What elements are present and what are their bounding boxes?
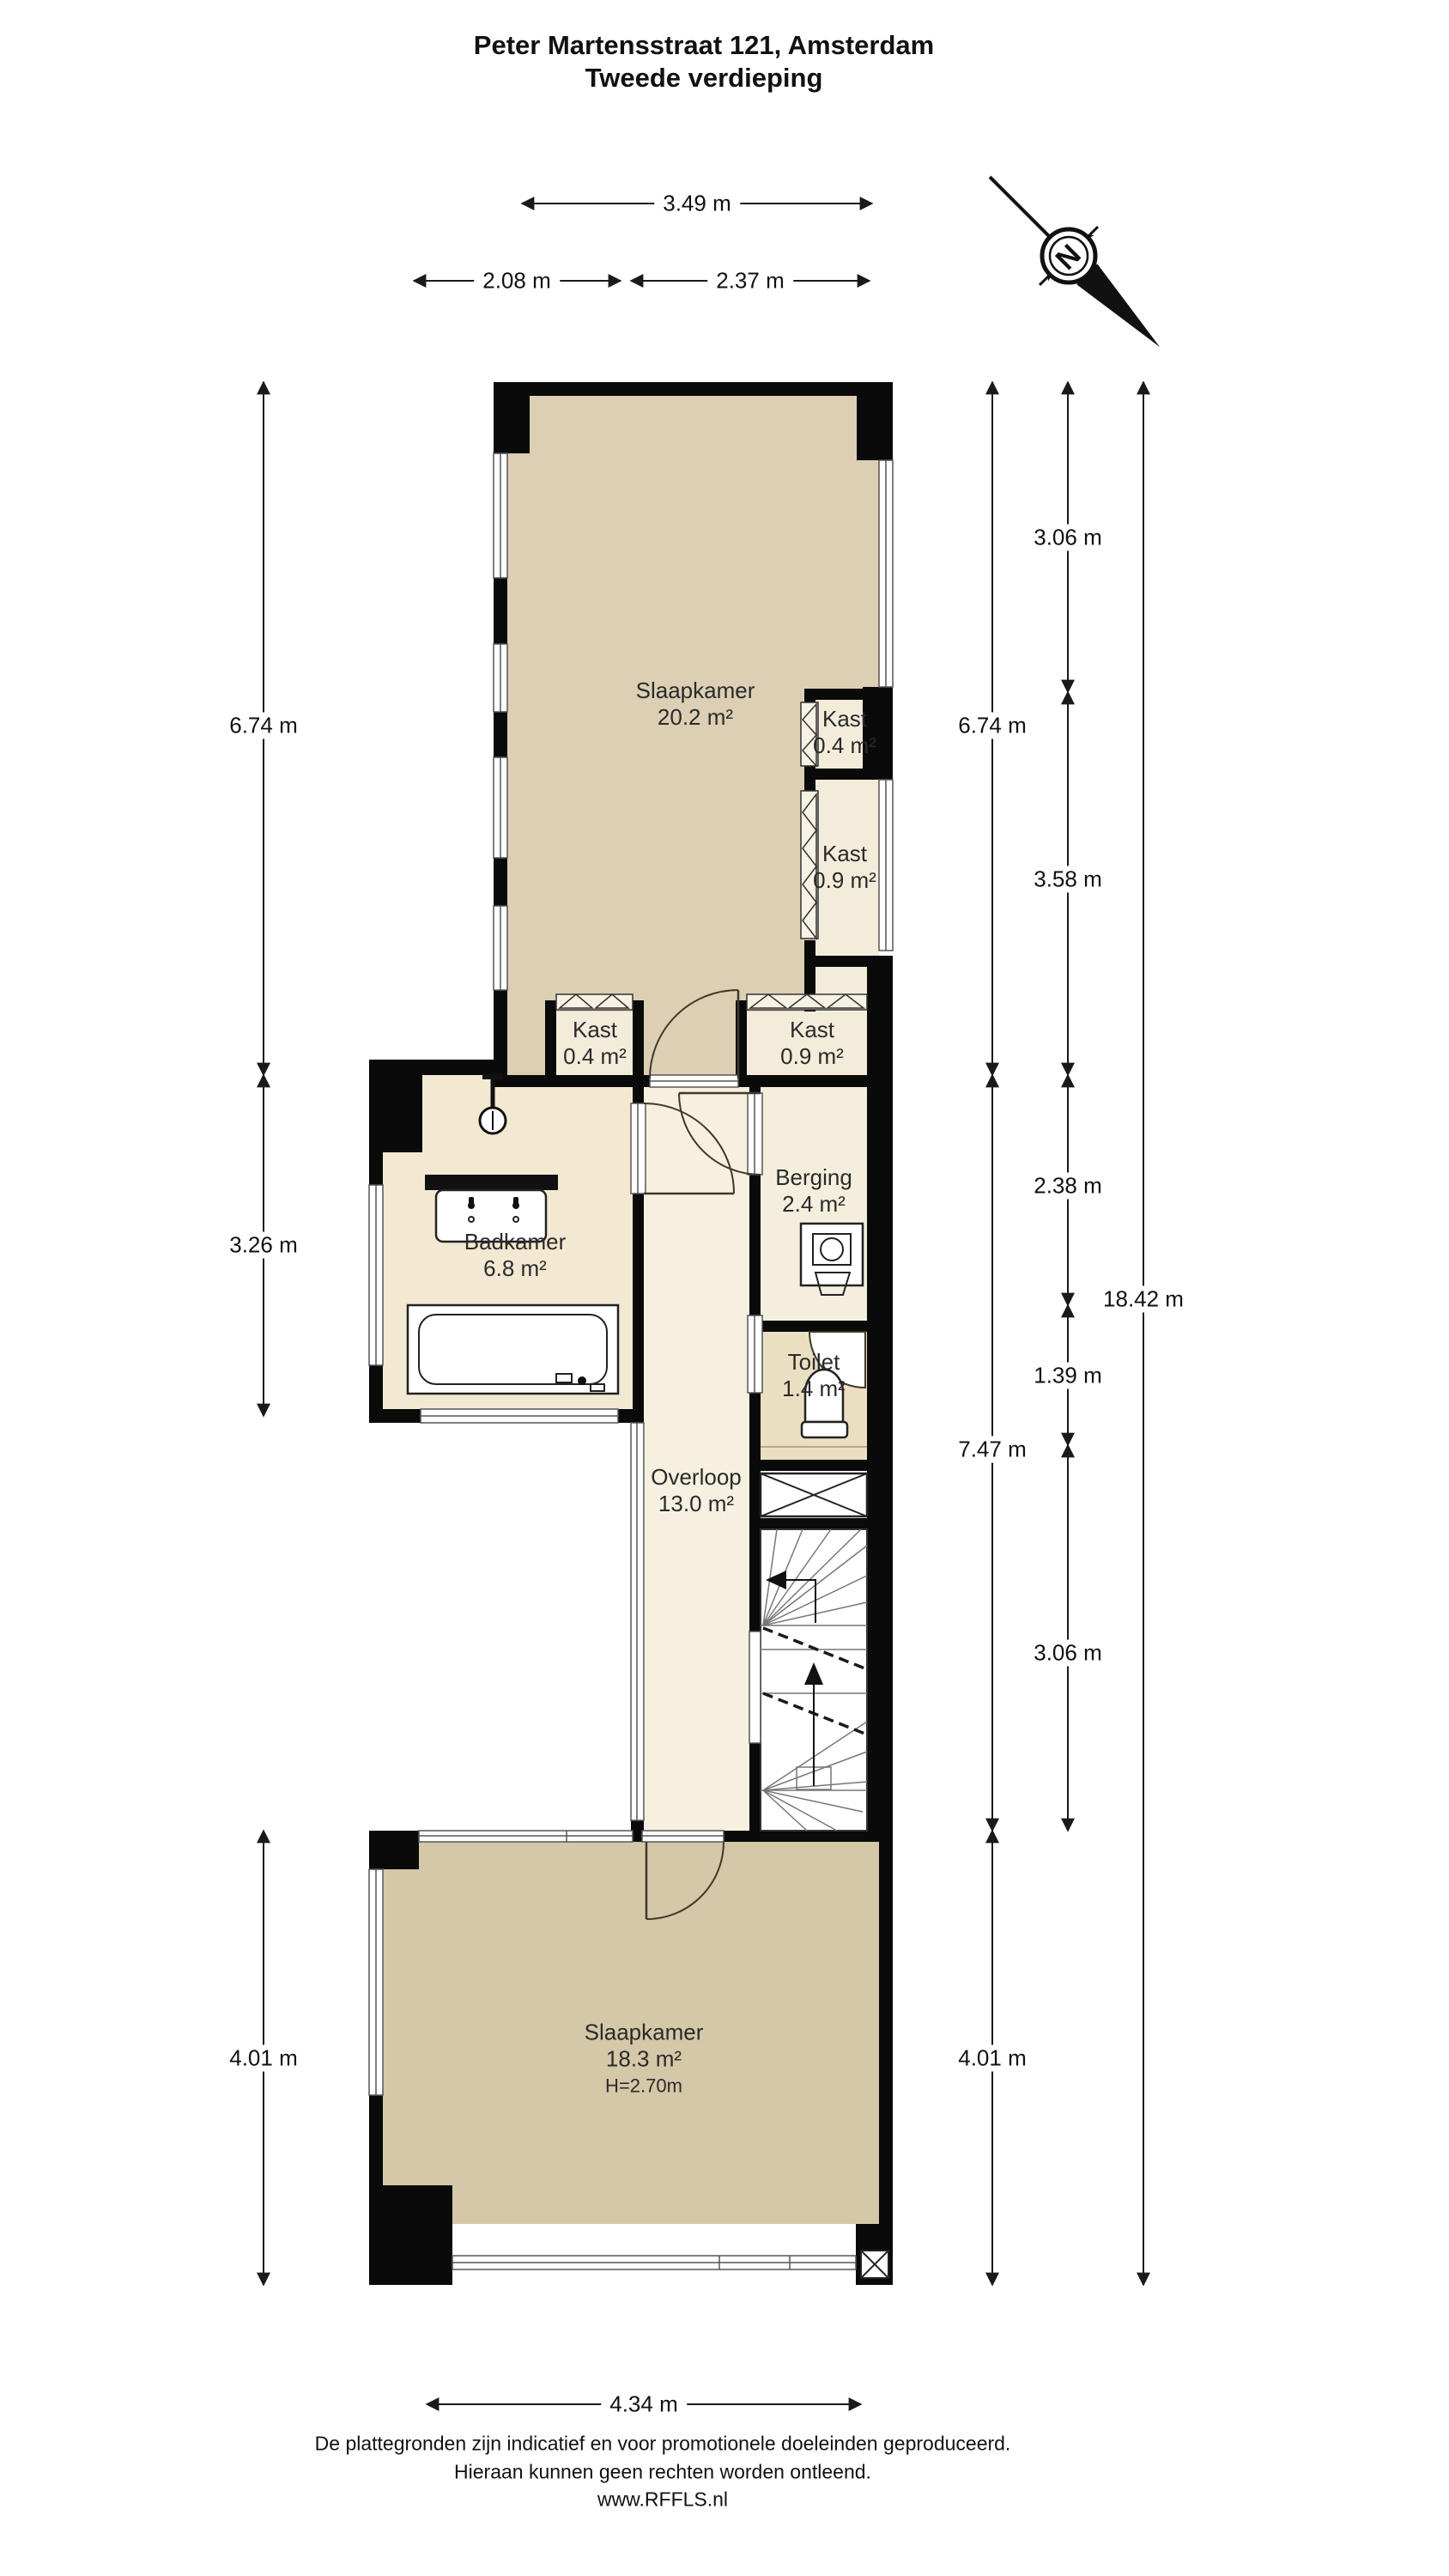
window-upper-left-3	[494, 757, 507, 858]
room-name: Toilet	[782, 1349, 846, 1376]
window-lower-bedroom-top	[419, 1831, 633, 1842]
footer-website: www.RFFLS.nl	[597, 2488, 728, 2512]
room-area: 18.3 m²	[585, 2046, 704, 2073]
room-name: Kast	[563, 1017, 627, 1043]
room-name: Badkamer	[464, 1229, 567, 1255]
room-label-berging: Berging 2.4 m²	[775, 1164, 852, 1218]
dim-top-total: 3.49 m	[654, 191, 740, 217]
dim-right-outer-total: 18.42 m	[1094, 1286, 1192, 1313]
dim-right-mid-5: 3.06 m	[1025, 1640, 1111, 1667]
dim-right-inner-lower: 4.01 m	[949, 2045, 1035, 2072]
room-name: Berging	[775, 1164, 852, 1191]
room-label-kast-onder-rechts: Kast 0.9 m²	[780, 1017, 844, 1070]
window-upper-left-1	[494, 453, 507, 578]
dim-right-inner-upper: 6.74 m	[949, 713, 1035, 739]
shaft-icon	[761, 1473, 867, 1516]
room-area: 0.9 m²	[780, 1043, 844, 1070]
room-name: Overloop	[651, 1464, 742, 1491]
room-label-kast-boven-1: Kast 0.4 m²	[813, 706, 876, 759]
washing-machine-icon	[801, 1224, 863, 1295]
window-bathroom-bottom	[421, 1409, 618, 1423]
folding-door-closet-row-left	[556, 994, 633, 1010]
dim-bottom-total: 4.34 m	[601, 2391, 687, 2418]
dim-left-lower: 4.01 m	[221, 2045, 306, 2072]
room-area: 20.2 m²	[636, 704, 755, 731]
room-name: Slaapkamer	[636, 677, 755, 704]
dim-right-mid-4: 1.39 m	[1025, 1363, 1111, 1389]
folding-door-closet-row-right	[747, 994, 867, 1010]
dim-right-mid-3: 2.38 m	[1025, 1173, 1111, 1200]
window-lower-bedroom-bottom	[452, 2256, 856, 2269]
room-name: Slaapkamer	[585, 2020, 704, 2046]
room-area: 0.4 m²	[813, 732, 876, 759]
room-area: 0.9 m²	[813, 867, 876, 894]
room-area: 6.8 m²	[464, 1255, 567, 1282]
window-lower-bedroom-left	[369, 1869, 383, 2095]
window-upper-right-1	[879, 460, 893, 687]
footer-disclaimer-2: Hieraan kunnen geen rechten worden ontle…	[454, 2461, 871, 2484]
bathtub-icon	[408, 1305, 618, 1394]
room-label-kast-onder-links: Kast 0.4 m²	[563, 1017, 627, 1070]
room-label-slaapkamer-boven: Slaapkamer 20.2 m²	[636, 677, 755, 731]
room-label-slaapkamer-onder: Slaapkamer 18.3 m² H=2.70m	[585, 2020, 704, 2099]
window-upper-right-2	[879, 780, 893, 951]
room-name: Kast	[813, 706, 876, 732]
room-label-kast-boven-2: Kast 0.9 m²	[813, 841, 876, 894]
dim-top-left: 2.08 m	[474, 268, 560, 295]
room-area: 2.4 m²	[775, 1191, 852, 1218]
floorplan-drawing	[0, 0, 1449, 2576]
window-upper-left-2	[494, 644, 507, 712]
room-height: H=2.70m	[585, 2073, 704, 2099]
vent-box-icon	[861, 2251, 888, 2278]
room-area: 13.0 m²	[651, 1491, 742, 1517]
footer-disclaimer-1: De plattegronden zijn indicatief en voor…	[315, 2433, 1011, 2456]
room-area: 1.4 m²	[782, 1376, 846, 1402]
dim-left-upper: 6.74 m	[221, 713, 306, 739]
room-area: 0.4 m²	[563, 1043, 627, 1070]
plan-title-floor: Tweede verdieping	[585, 63, 823, 94]
window-upper-left-4	[494, 906, 507, 990]
room-label-badkamer: Badkamer 6.8 m²	[464, 1229, 567, 1282]
staircase	[749, 1529, 867, 1831]
dim-top-right: 2.37 m	[707, 268, 793, 295]
dim-right-mid-2: 3.58 m	[1025, 866, 1111, 893]
dim-right-inner-middle: 7.47 m	[949, 1437, 1035, 1463]
window-bathroom-left	[369, 1185, 383, 1365]
plan-title-address: Peter Martensstraat 121, Amsterdam	[474, 30, 934, 61]
room-name: Kast	[780, 1017, 844, 1043]
floorplan-page: { "title": { "line1": "Peter Martensstra…	[0, 0, 1449, 2576]
window-landing-glazing	[631, 1423, 644, 1820]
dim-left-middle: 3.26 m	[221, 1232, 306, 1259]
room-label-toilet: Toilet 1.4 m²	[782, 1349, 846, 1402]
room-label-overloop: Overloop 13.0 m²	[651, 1464, 742, 1517]
room-name: Kast	[813, 841, 876, 867]
dim-right-mid-1: 3.06 m	[1025, 525, 1111, 551]
